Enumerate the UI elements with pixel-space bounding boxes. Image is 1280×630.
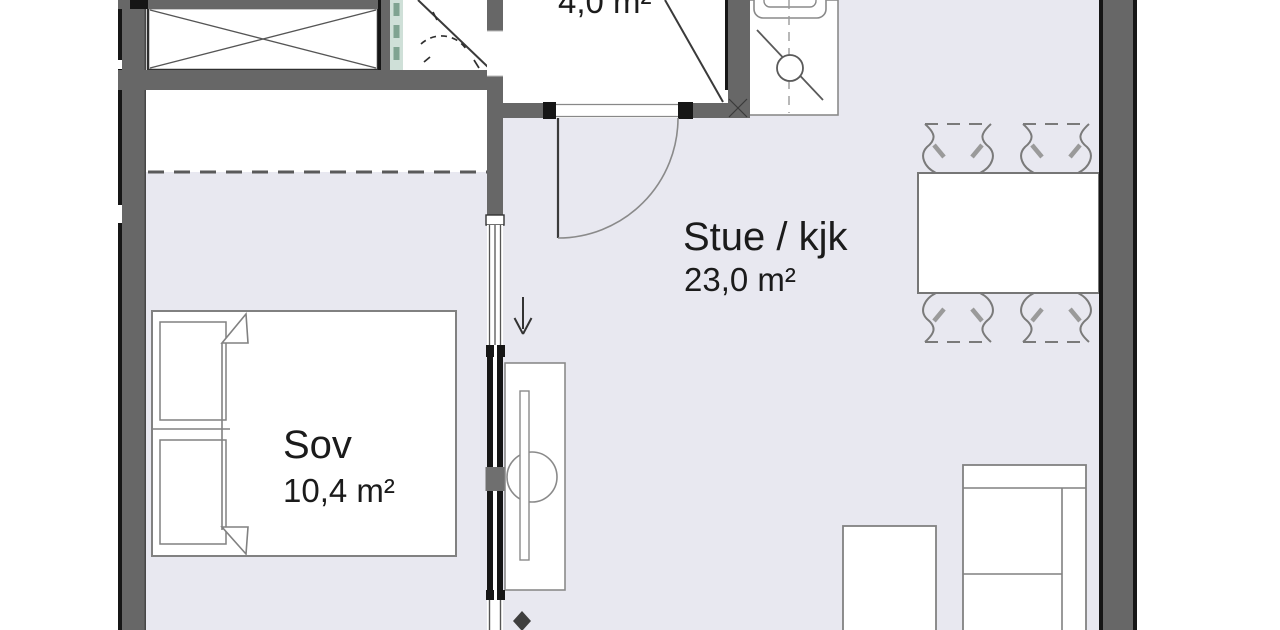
bedroom-white-band [146,90,487,172]
bath-wall [503,103,543,118]
left-wall-edge [118,0,122,630]
pillow [160,440,226,544]
bath-door-opening [556,103,678,118]
shower-opening [487,30,503,77]
right-wall-edge [1099,0,1103,630]
right-wall-edge [1133,0,1137,630]
bedroom-area: 10,4 m² [283,472,395,509]
wardrobe [148,8,378,70]
mid-wall [487,77,503,215]
mid-wall-upper [487,0,503,30]
living-room-area: 23,0 m² [684,261,796,298]
bedroom-label: Sov [283,423,352,467]
washbasin [505,363,565,590]
top-wall [118,0,390,9]
wall-notch [117,205,122,223]
bedroom-top-wall [118,70,503,90]
sofa [963,465,1086,630]
shower-floor [403,0,487,70]
floor-plan: 4,0 m² Stue / kjk 23,0 m² Sov 10,4 m² [0,0,1280,630]
dining-table [918,173,1099,293]
kitchen-sink [748,0,838,115]
floor-plan-drawing: 4,0 m² Stue / kjk 23,0 m² Sov 10,4 m² [0,0,1280,630]
right-wall [1103,0,1133,630]
pillow [160,322,226,420]
wall-notch [117,60,122,69]
window-cap [486,215,504,225]
bath-right-wall [728,0,750,118]
hall-area-label: 4,0 m² [558,0,652,20]
living-room-label: Stue / kjk [683,215,849,259]
left-wall [122,0,146,630]
coffee-table [843,526,936,630]
